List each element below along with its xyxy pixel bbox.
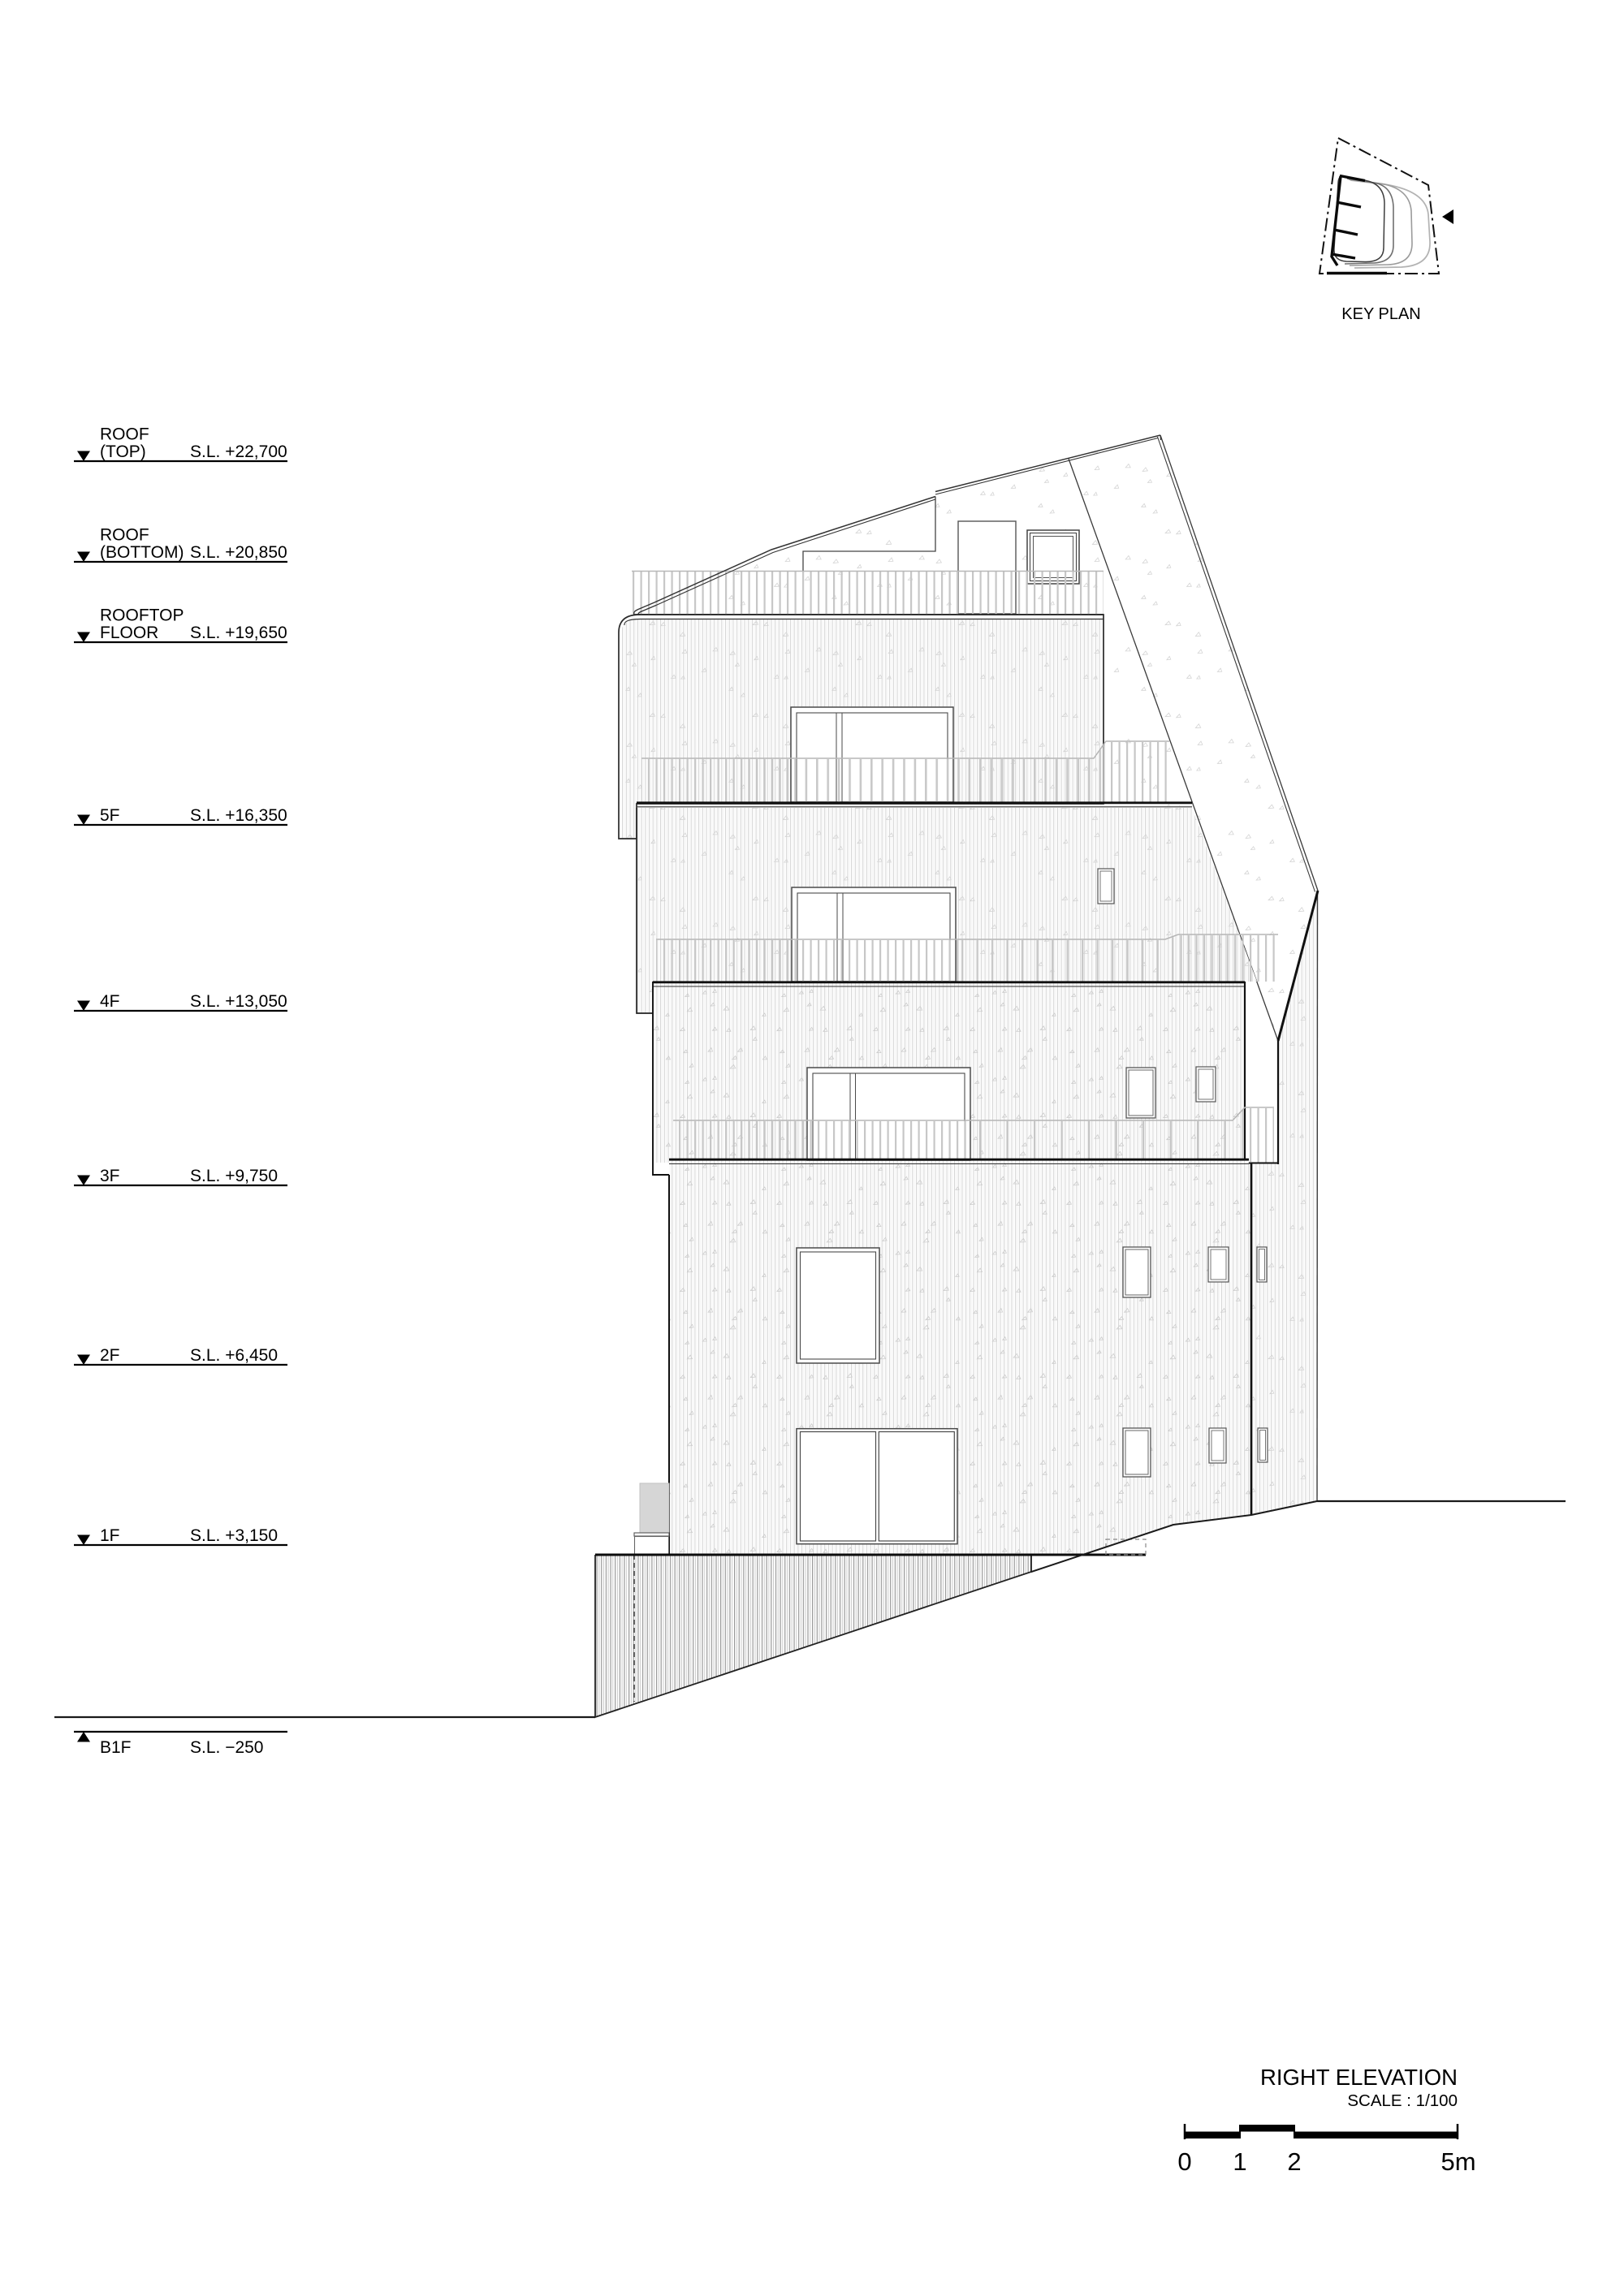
- svg-text:(BOTTOM): (BOTTOM): [100, 543, 184, 562]
- svg-text:FLOOR: FLOOR: [100, 624, 158, 642]
- svg-text:5F: 5F: [100, 806, 120, 825]
- svg-text:3F: 3F: [100, 1167, 120, 1185]
- svg-text:1F: 1F: [100, 1526, 120, 1545]
- svg-text:ROOF: ROOF: [100, 425, 149, 444]
- svg-text:S.L. +9,750: S.L. +9,750: [190, 1167, 278, 1185]
- svg-text:KEY PLAN: KEY PLAN: [1341, 305, 1420, 323]
- svg-text:S.L. +16,350: S.L. +16,350: [190, 806, 287, 825]
- svg-text:ROOF: ROOF: [100, 526, 149, 545]
- svg-text:5m: 5m: [1440, 2147, 1475, 2176]
- svg-text:ROOFTOP: ROOFTOP: [100, 606, 184, 625]
- svg-text:B1F: B1F: [100, 1738, 132, 1757]
- svg-text:0: 0: [1177, 2147, 1191, 2176]
- svg-text:S.L. +19,650: S.L. +19,650: [190, 624, 287, 642]
- svg-text:RIGHT ELEVATION: RIGHT ELEVATION: [1260, 2065, 1458, 2090]
- svg-text:S.L. +22,700: S.L. +22,700: [190, 442, 287, 461]
- svg-text:S.L. +3,150: S.L. +3,150: [190, 1526, 278, 1545]
- svg-text:2F: 2F: [100, 1346, 120, 1365]
- svg-text:SCALE : 1/100: SCALE : 1/100: [1347, 2091, 1458, 2110]
- svg-text:S.L. +13,050: S.L. +13,050: [190, 992, 287, 1011]
- svg-text:4F: 4F: [100, 992, 120, 1011]
- svg-text:S.L. +6,450: S.L. +6,450: [190, 1346, 278, 1365]
- svg-text:(TOP): (TOP): [100, 442, 146, 461]
- svg-text:1: 1: [1233, 2147, 1246, 2176]
- svg-text:2: 2: [1287, 2147, 1301, 2176]
- svg-text:S.L. −250: S.L. −250: [190, 1738, 264, 1757]
- svg-text:S.L. +20,850: S.L. +20,850: [190, 543, 287, 562]
